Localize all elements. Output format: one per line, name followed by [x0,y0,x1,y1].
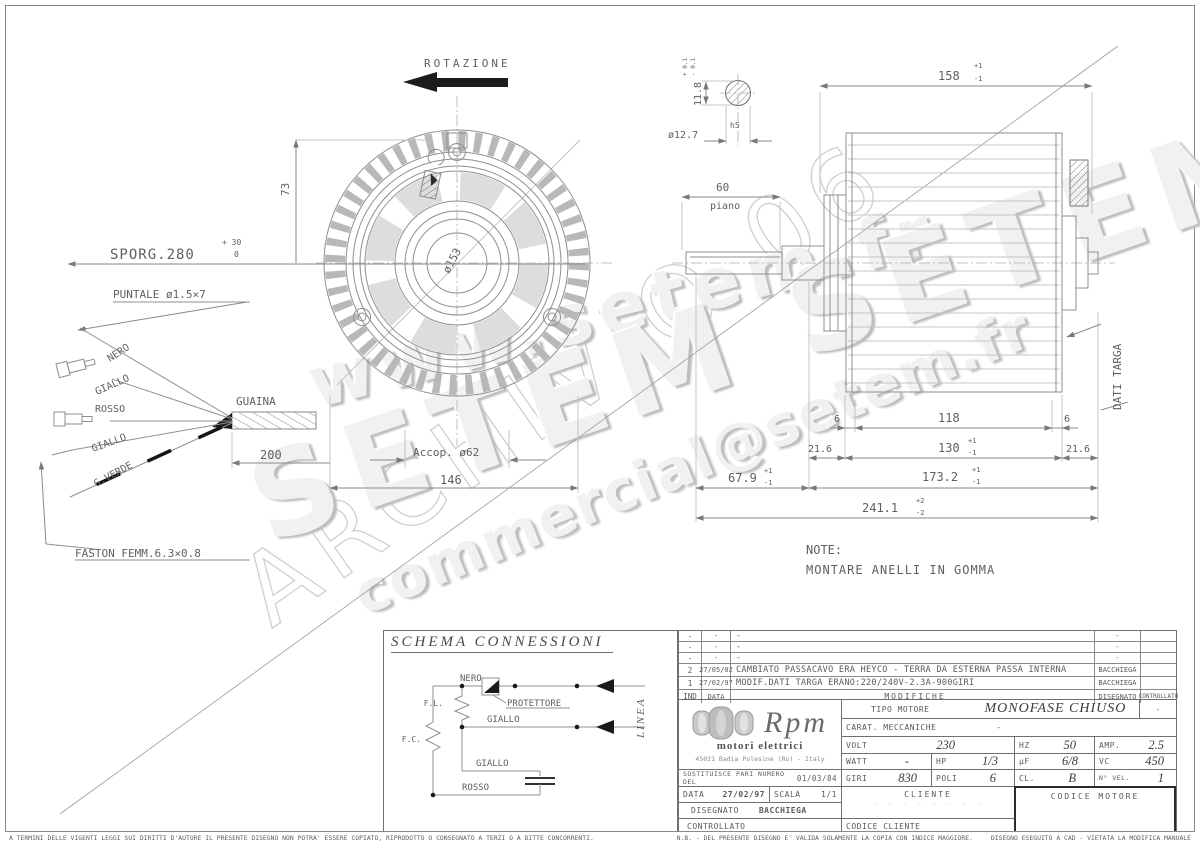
rev-index: - [679,653,701,663]
rev-chk [1140,642,1176,652]
rev-index: 1 [679,677,701,689]
carat-meccaniche-cell: CARAT. MECCANICHE - [841,718,1176,736]
rev-by: - [1094,642,1140,652]
giri-label: GIRI [846,774,867,783]
hz-cell: HZ 50 [1014,736,1094,753]
data-value: 27/02/97 [722,790,765,799]
scala-value: 1/1 [821,790,837,799]
giri-value: 830 [898,771,917,786]
volt-label: VOLT [846,741,867,750]
nvel-label: N° VEL. [1099,774,1130,782]
hp-label: HP [936,757,947,766]
rev-by: - [1094,653,1140,663]
tipo-motore-cell: TIPO MOTORE MONOFASE CHIUSO [841,699,1139,718]
table-row: - - - - [679,631,1176,641]
title-block: - - - - - - - - - - - - [678,630,1177,832]
rev-chk [1140,677,1176,689]
rev-chk [1140,631,1176,641]
codice-cliente-label: CODICE CLIENTE [846,822,920,831]
poli-value: 6 [990,771,996,786]
cl-cell: CL. B [1014,769,1094,786]
vc-cell: VC 450 [1094,753,1176,769]
nvel-value: 1 [1158,771,1164,786]
uf-cell: µF 6/8 [1014,753,1094,769]
table-row: 1 27/02/97 MODIF.DATI TARGA ERANO:220/24… [679,676,1176,689]
cl-label: CL. [1019,774,1035,783]
tipo-dash-cell: - [1139,699,1176,718]
hz-label: HZ [1019,741,1030,750]
rev-chk [1140,664,1176,676]
cliente-label: CLIENTE [904,790,952,799]
rev-desc: MODIF.DATI TARGA ERANO:220/240V-2.3A-900… [730,677,1094,689]
rev-by: BACCHIEGA [1094,677,1140,689]
rev-date: 27/05/02 [701,664,730,676]
hz-value: 50 [1064,738,1077,753]
rev-index: 2 [679,664,701,676]
brand-address: 45021 Badia Polesine (Ro) - Italy [695,755,824,763]
footer-legal-strip: A TERMINI DELLE VIGENTI LEGGI SUI DIRITT… [5,831,1195,843]
hp-value: 1/3 [982,754,998,769]
poli-label: POLI [936,774,957,783]
vc-value: 450 [1145,754,1164,769]
footer-cad-text: DISEGNO ESEGUITO A CAD - VIETATA LA MODI… [991,834,1191,842]
rev-date: - [701,631,730,641]
data-label: DATA [683,790,704,799]
company-logo-cell: Rpm motori elettrici 45021 Badia Polesin… [679,699,841,769]
carat-value: - [996,723,1001,732]
rev-chk [1140,653,1176,663]
amp-cell: AMP. 2.5 [1094,736,1176,753]
cliente-ghost-text: - - - - - - - - [872,799,983,809]
table-row: - - - - [679,652,1176,663]
giri-cell: GIRI 830 [841,769,931,786]
rev-desc: - [730,642,1094,652]
brand-name: Rpm [764,708,828,738]
rev-by: - [1094,631,1140,641]
footer-left-text: A TERMINI DELLE VIGENTI LEGGI SUI DIRITT… [9,834,594,842]
rev-date: 27/02/97 [701,677,730,689]
rpm-logo-icon [692,706,758,740]
codice-motore-label: CODICE MOTORE [1051,792,1140,801]
tipo-dash: - [1155,705,1160,714]
tipo-motore-label: TIPO MOTORE [871,705,929,714]
footer-nb-text: N.B. - DEL PRESENTE DISEGNO E' VALIDA SO… [677,834,973,842]
scala-label: SCALA [774,790,801,799]
rev-by: BACCHIEGA [1094,664,1140,676]
vc-label: VC [1099,757,1110,766]
scala-cell: SCALA 1/1 [769,786,841,802]
rev-date: - [701,642,730,652]
amp-value: 2.5 [1148,738,1164,753]
disegnato-cell: DISEGNATO BACCHIEGA [679,802,841,818]
rev-index: - [679,631,701,641]
rev-desc: - [730,631,1094,641]
cliente-cell: CLIENTE - - - - - - - - [841,786,1014,818]
rev-date: - [701,653,730,663]
cl-value: B [1068,771,1076,786]
rev-desc: CAMBIATO PASSACAVO ERA HEYCO - TERRA DA … [730,664,1094,676]
hp-cell: HP 1/3 [931,753,1014,769]
volt-cell: VOLT 230 [841,736,1014,753]
watt-cell: WATT - [841,753,931,769]
poli-cell: POLI 6 [931,769,1014,786]
watt-label: WATT [846,757,867,766]
volt-value: 230 [936,738,955,753]
disegnato-value: BACCHIEGA [759,806,807,815]
brand-subtitle: motori elettrici [717,740,804,752]
rev-desc: - [730,653,1094,663]
controllato-label: CONTROLLATO [687,822,745,831]
carat-label: CARAT. MECCANICHE [846,723,936,732]
nvel-cell: N° VEL. 1 [1094,769,1176,786]
data-cell: DATA 27/02/97 [679,786,769,802]
schema-title: SCHEMA CONNESSIONI [391,634,613,653]
sostituisce-cell: SOSTITUISCE PARI NUMERO DEL 01/03/84 [679,769,841,786]
tipo-motore-value: MONOFASE CHIUSO [984,701,1126,717]
rev-index: - [679,642,701,652]
watt-value: - [905,754,909,769]
table-row: 2 27/05/02 CAMBIATO PASSACAVO ERA HEYCO … [679,663,1176,676]
uf-label: µF [1019,757,1030,766]
revisions-table: - - - - - - - - - - - - [679,631,1176,699]
disegnato-label: DISEGNATO [691,806,739,815]
drawing-sheet: ARCHIVIO 06 www.setem.fr SETEM SETEM com… [0,0,1200,848]
amp-label: AMP. [1099,741,1120,750]
sostituisce-value: 01/03/84 [797,774,837,783]
table-row: - - - - [679,641,1176,652]
uf-value: 6/8 [1062,754,1078,769]
schema-connessioni-box: SCHEMA CONNESSIONI [383,630,678,832]
sostituisce-label: SOSTITUISCE PARI NUMERO DEL [683,770,797,786]
codice-motore-cell: CODICE MOTORE [1014,786,1176,833]
